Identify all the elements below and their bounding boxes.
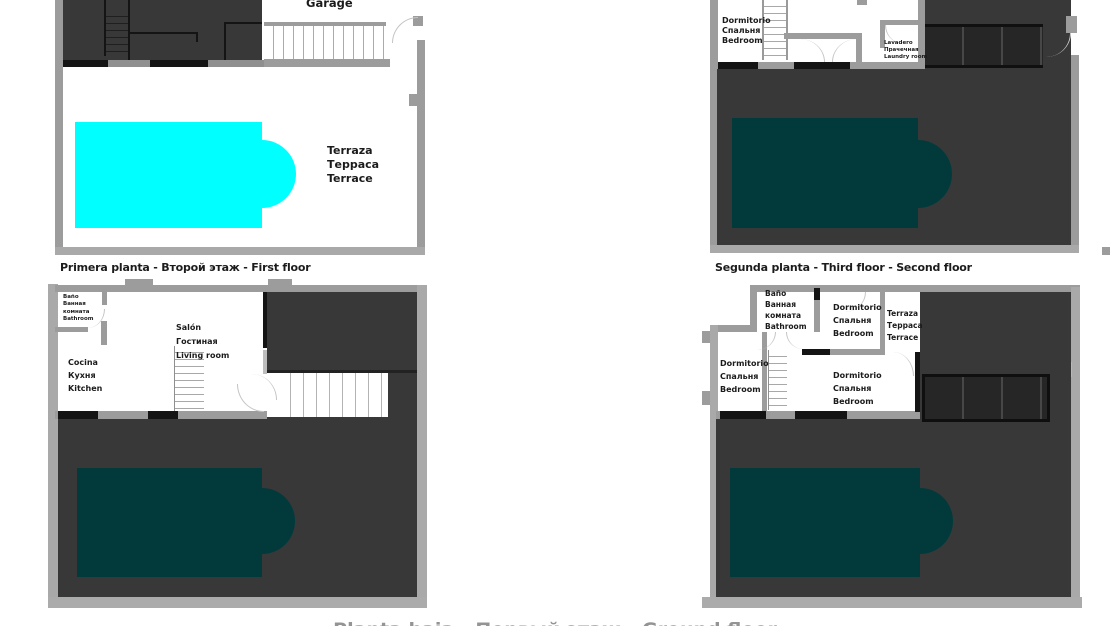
planA-right-tab <box>409 94 417 106</box>
planD-left-tab-2 <box>702 391 710 405</box>
pool-highlighted-cap <box>262 140 296 208</box>
kitchen-label: CocinaКухняKitchen <box>68 356 102 395</box>
bedroom-center-label: DormitorioСпальняBedroom <box>833 369 882 408</box>
pool-highlighted <box>75 122 262 228</box>
planC-top-tab-2 <box>268 279 292 285</box>
planC-bottom-wall <box>48 597 427 608</box>
planD-hall-door-arc <box>786 332 803 349</box>
planD-bottom-wall <box>702 597 1082 608</box>
planD-terrace-door-arc <box>893 352 914 376</box>
bathroom-right-wall <box>102 288 107 305</box>
carport-pergola <box>264 26 386 59</box>
planD-mid-wall-dark <box>802 349 830 355</box>
garage-stair-treads <box>106 10 128 54</box>
planC-pool <box>77 468 262 577</box>
planB-hall-door-arc-2 <box>832 39 857 62</box>
bedroom-label-planB: DormitorioСпальняBedroom <box>722 16 771 46</box>
garage-label: Garage <box>306 0 353 10</box>
planB-stair-band <box>925 24 1043 68</box>
bathroom-bottom-wall <box>55 327 88 332</box>
planB-hall-wall-h <box>784 33 860 39</box>
garage-wall-line-h <box>128 32 198 34</box>
bedroom-left-label: DormitorioСпальняBedroom <box>720 357 769 396</box>
planB-door-tab <box>1066 16 1077 33</box>
planB-pool <box>732 118 918 228</box>
planC-main-stairs <box>278 373 388 417</box>
planC-left-wall <box>48 284 58 608</box>
livingroom-door-arc <box>237 384 264 412</box>
planD-left-tab-1 <box>702 331 710 343</box>
planD-bath-wall-dark <box>814 288 820 300</box>
planB-bottom-wall <box>710 245 1079 253</box>
planD-bottom-room-dark1 <box>720 411 766 419</box>
planC-top-wall <box>55 285 427 292</box>
carport-bottom-wall <box>264 59 390 67</box>
planA-right-wall <box>417 40 425 254</box>
planC-darkroom-left-wall <box>263 292 267 348</box>
planC-mid-wall-dark2 <box>148 411 178 419</box>
planD-bath-door-arc <box>757 332 776 350</box>
planB-hall-door-arc-1 <box>800 39 825 62</box>
floorplan-sheet: Garage TerrazaТеррасаTerrace DormitorioС… <box>0 0 1110 626</box>
planD-stairs <box>768 350 787 410</box>
planC-wall-stub <box>101 321 107 345</box>
planB-top-fragment <box>857 0 867 5</box>
planC-mid-wall-dark1 <box>58 411 98 419</box>
second-floor-title: Segunda planta - Third floor - Second fl… <box>715 261 972 274</box>
planD-bath-right-wall <box>814 300 820 332</box>
right-edge-fragment <box>1102 247 1110 255</box>
livingroom-label: SalónГостинаяLiving room <box>176 321 229 363</box>
garage-nook-wall-h <box>224 22 262 24</box>
planD-center-wall-dark <box>915 352 920 412</box>
garage-stair-rail-right <box>128 0 130 60</box>
bedroom-top-label: DormitorioСпальняBedroom <box>833 301 882 340</box>
planA-bottom-wall <box>55 247 425 255</box>
garage-area <box>63 0 262 62</box>
planB-right-wall <box>1071 55 1079 253</box>
garage-bottom-wall-dark1 <box>63 60 108 67</box>
planD-right-wall <box>1071 287 1080 607</box>
planD-pool <box>730 468 920 577</box>
planC-top-tab-1 <box>125 279 153 285</box>
planD-stair-band <box>922 374 1050 422</box>
garage-wall-line-v <box>196 32 198 42</box>
planA-left-wall <box>55 0 63 254</box>
terrace-label-planA: TerrazaТеррасаTerrace <box>327 144 379 186</box>
terrace-label-planD: TerrazaТеррасаTerrace <box>887 308 923 344</box>
planC-stair-landing <box>388 373 417 419</box>
laundry-label: LavaderoПрачечнаяLaundry room <box>884 40 927 61</box>
planD-bottom-room-dark2 <box>795 411 847 419</box>
garage-nook-wall-v <box>224 22 226 60</box>
entry-door-arc <box>392 17 418 43</box>
first-floor-title: Primera planta - Второй этаж - First flo… <box>60 261 310 274</box>
cutoff-caption: Planta baja - Первый этаж - Ground floor <box>0 619 1110 626</box>
bathroom-label-planC: BañoВаннаякомнатаBathroom <box>63 294 93 323</box>
bathroom-label-planD: BañoВаннаякомнатаBathroom <box>765 288 807 332</box>
garage-bottom-wall-dark2 <box>150 60 208 67</box>
planC-dark-room <box>267 292 417 372</box>
planC-right-wall <box>417 285 427 608</box>
planB-room-bottom-dark1 <box>718 62 758 69</box>
planB-room-bottom-dark2 <box>794 62 850 69</box>
